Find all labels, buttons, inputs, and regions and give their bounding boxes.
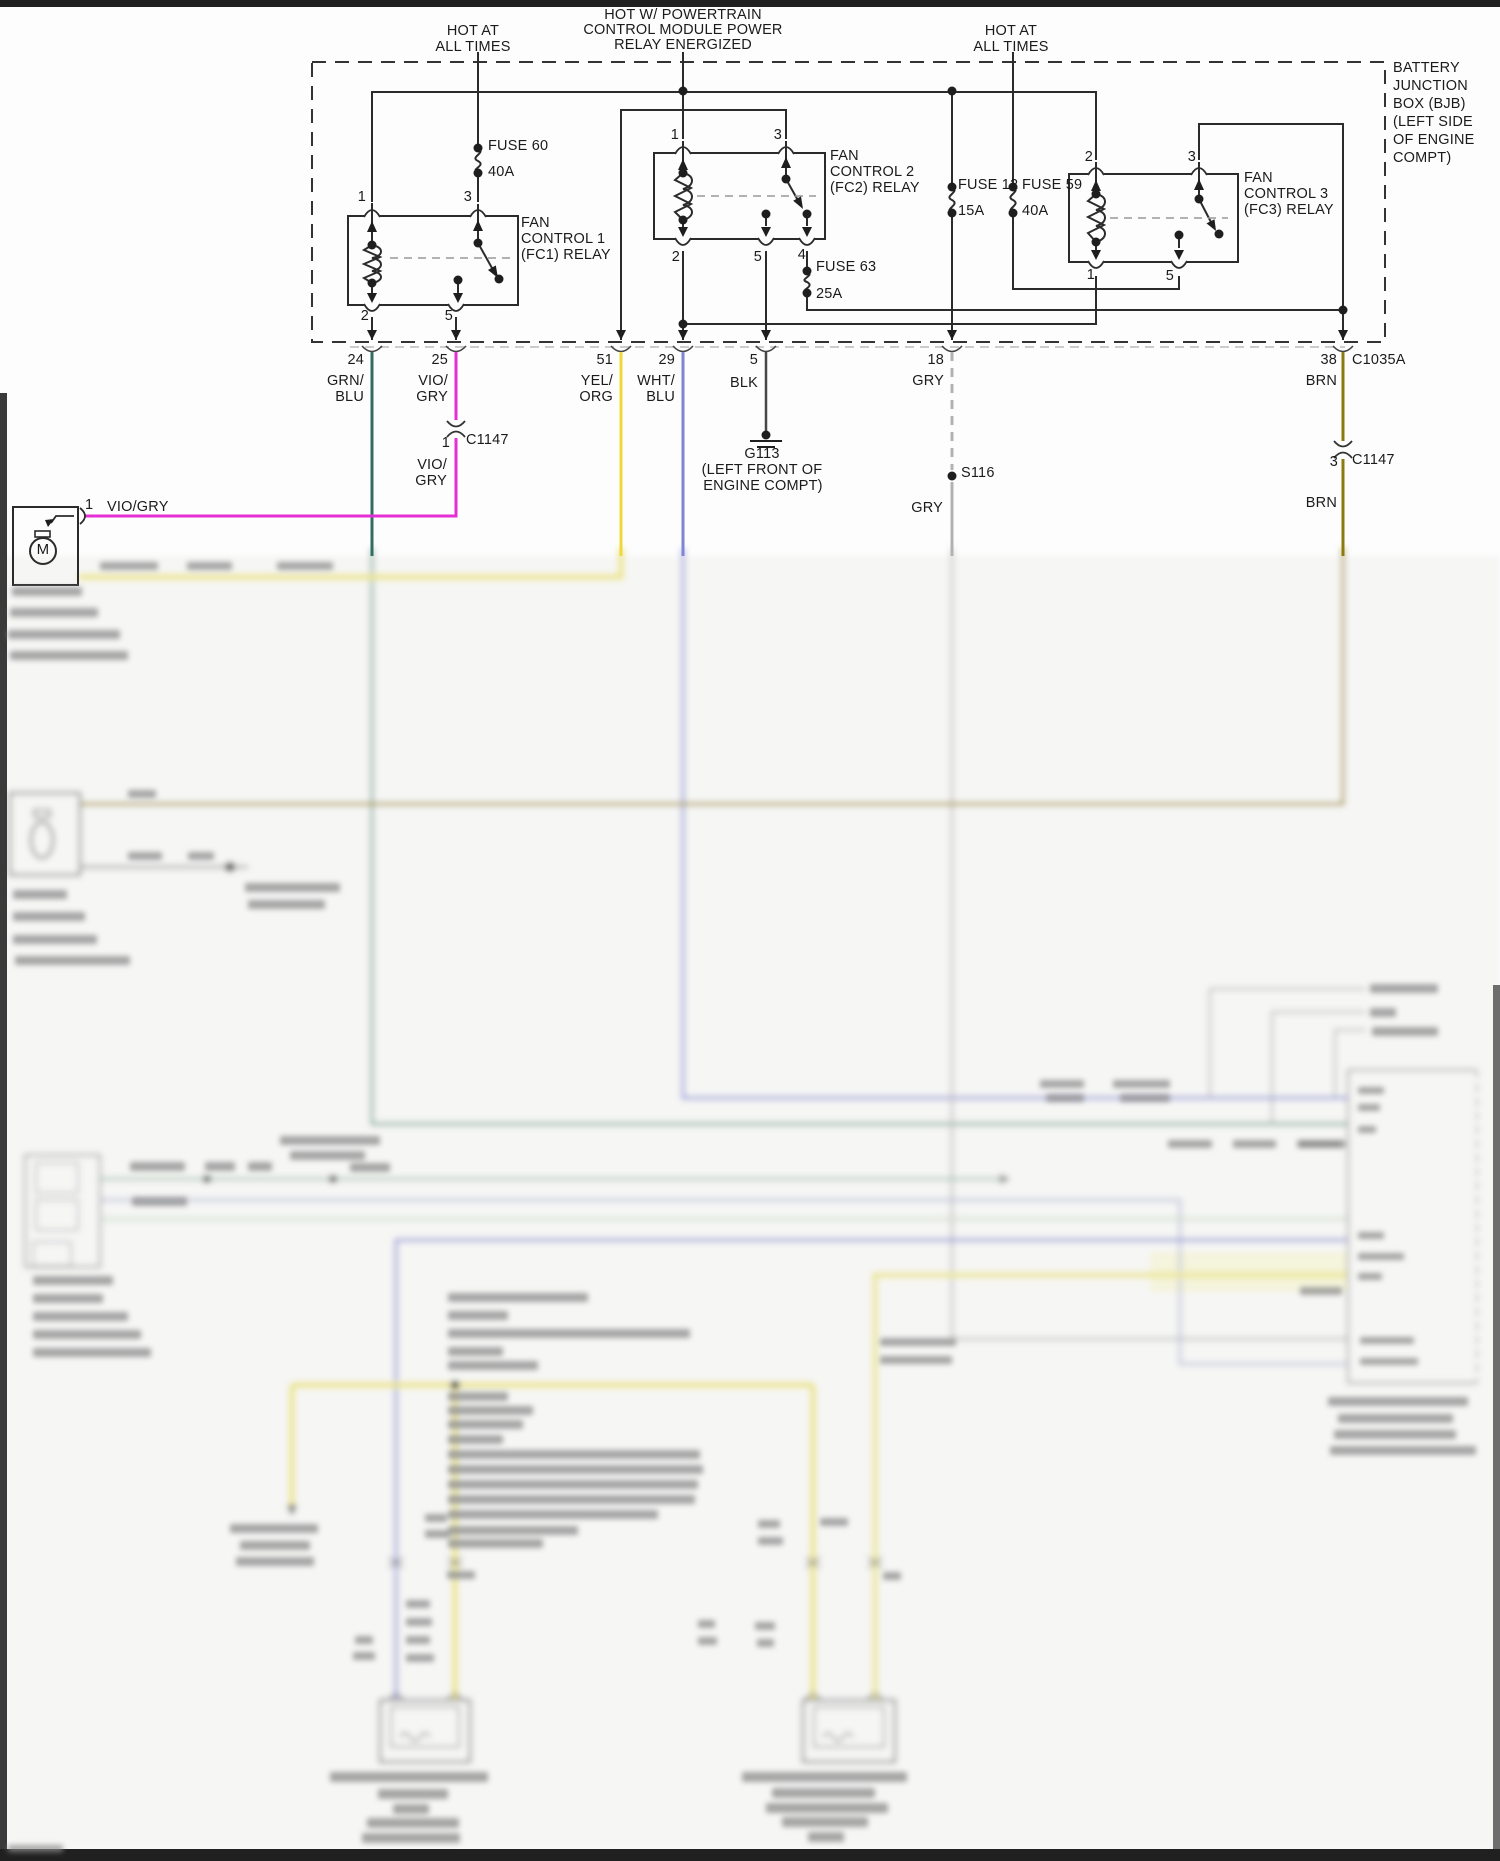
ground-g113-name: G113	[744, 447, 779, 462]
hot-right-line1: HOT AT	[985, 24, 1037, 39]
fc3-pin-3: 3	[1188, 150, 1196, 165]
fc2-pin-5: 5	[754, 250, 762, 265]
motor-pin-label: 1	[85, 498, 93, 513]
wire-25-color2: GRY	[416, 390, 448, 405]
hot-left-line1: HOT AT	[447, 24, 499, 39]
fuse-59-name: FUSE 59	[1022, 178, 1082, 193]
wire-24-num: 24	[347, 353, 364, 368]
wire-18-color: GRY	[912, 374, 944, 389]
wire-29-num: 29	[658, 353, 675, 368]
hot-right-line2: ALL TIMES	[973, 40, 1048, 55]
wire-38-color: BRN	[1306, 374, 1337, 389]
fc1-pin-5: 5	[445, 309, 453, 324]
fc2-pin-3: 3	[774, 128, 782, 143]
ground-g113-loc1: (LEFT FRONT OF	[702, 463, 823, 478]
fuse-63-rating: 25A	[816, 287, 842, 302]
hot-left-line2: ALL TIMES	[435, 40, 510, 55]
fc1-name-2: CONTROL 1	[521, 232, 605, 247]
fc1-name-1: FAN	[521, 216, 550, 231]
c1147-right-name: C1147	[1352, 453, 1395, 468]
fc2-name-1: FAN	[830, 149, 859, 164]
wire-5-color: BLK	[730, 376, 758, 391]
wire-51-color2: ORG	[579, 390, 613, 405]
motor-wire-label: VIO/GRY	[107, 500, 169, 515]
fc1-pin-3: 3	[464, 190, 472, 205]
connector-c1035a-label: C1035A	[1352, 353, 1406, 368]
fc3-pin-5: 5	[1166, 269, 1174, 284]
fuse-12-rating: 15A	[958, 204, 984, 219]
wire-18-num: 18	[927, 353, 944, 368]
wire-29-color1: WHT/	[637, 374, 675, 389]
fc2-name-3: (FC2) RELAY	[830, 181, 920, 196]
fuse-60-rating: 40A	[488, 165, 514, 180]
wire-51-color1: YEL/	[581, 374, 613, 389]
fc1-name-3: (FC1) RELAY	[521, 248, 611, 263]
c1147-left-pin: 1	[442, 436, 450, 451]
fc3-name-3: (FC3) RELAY	[1244, 203, 1334, 218]
wire-5-num: 5	[750, 353, 758, 368]
diagram-labels: HOT AT ALL TIMES HOT W/ POWERTRAIN CONTR…	[0, 0, 1500, 1861]
fc1-pin-2: 2	[361, 309, 369, 324]
wiring-diagram-page: HOT AT ALL TIMES HOT W/ POWERTRAIN CONTR…	[0, 0, 1500, 1861]
fc1-pin-1: 1	[358, 190, 366, 205]
fuse-59-rating: 40A	[1022, 204, 1048, 219]
splice-s116-label: S116	[961, 466, 995, 481]
fc2-name-2: CONTROL 2	[830, 165, 914, 180]
wire-25-num: 25	[431, 353, 448, 368]
fuse-63-name: FUSE 63	[816, 260, 876, 275]
ground-g113-loc2: ENGINE COMPT)	[703, 479, 822, 494]
wire-18-color-below: GRY	[911, 501, 943, 516]
fuse-60-name: FUSE 60	[488, 139, 548, 154]
bjb-label-3: BOX (BJB)	[1393, 97, 1466, 112]
wire-24-color1: GRN/	[327, 374, 364, 389]
fc3-name-1: FAN	[1244, 171, 1273, 186]
pcm-feed-line3: RELAY ENERGIZED	[614, 38, 752, 53]
fc2-pin-1: 1	[671, 128, 679, 143]
bjb-label-2: JUNCTION	[1393, 79, 1468, 94]
fc3-pin-2: 2	[1085, 150, 1093, 165]
fuse-12-name: FUSE 12	[958, 178, 1018, 193]
motor-symbol-m: M	[37, 542, 50, 557]
fc3-name-2: CONTROL 3	[1244, 187, 1328, 202]
wire-29-color2: BLU	[646, 390, 675, 405]
wire-25-color1: VIO/	[418, 374, 448, 389]
bjb-label-1: BATTERY	[1393, 61, 1460, 76]
bjb-label-4: (LEFT SIDE	[1393, 115, 1473, 130]
wire-38-color-below: BRN	[1306, 496, 1337, 511]
fc2-pin-4: 4	[798, 248, 806, 263]
c1147-right-pin: 3	[1330, 455, 1338, 470]
wire-51-num: 51	[596, 353, 613, 368]
pcm-feed-line1: HOT W/ POWERTRAIN	[604, 8, 762, 23]
wire-24-color2: BLU	[335, 390, 364, 405]
fc3-pin-1: 1	[1087, 268, 1095, 283]
pcm-feed-line2: CONTROL MODULE POWER	[583, 23, 782, 38]
fc2-pin-2: 2	[672, 250, 680, 265]
c1147-left-color1: VIO/	[417, 458, 447, 473]
c1147-left-color2: GRY	[415, 474, 447, 489]
wire-38-num: 38	[1320, 353, 1337, 368]
bjb-label-5: OF ENGINE	[1393, 133, 1475, 148]
c1147-left-name: C1147	[466, 433, 509, 448]
bjb-label-6: COMPT)	[1393, 151, 1451, 166]
